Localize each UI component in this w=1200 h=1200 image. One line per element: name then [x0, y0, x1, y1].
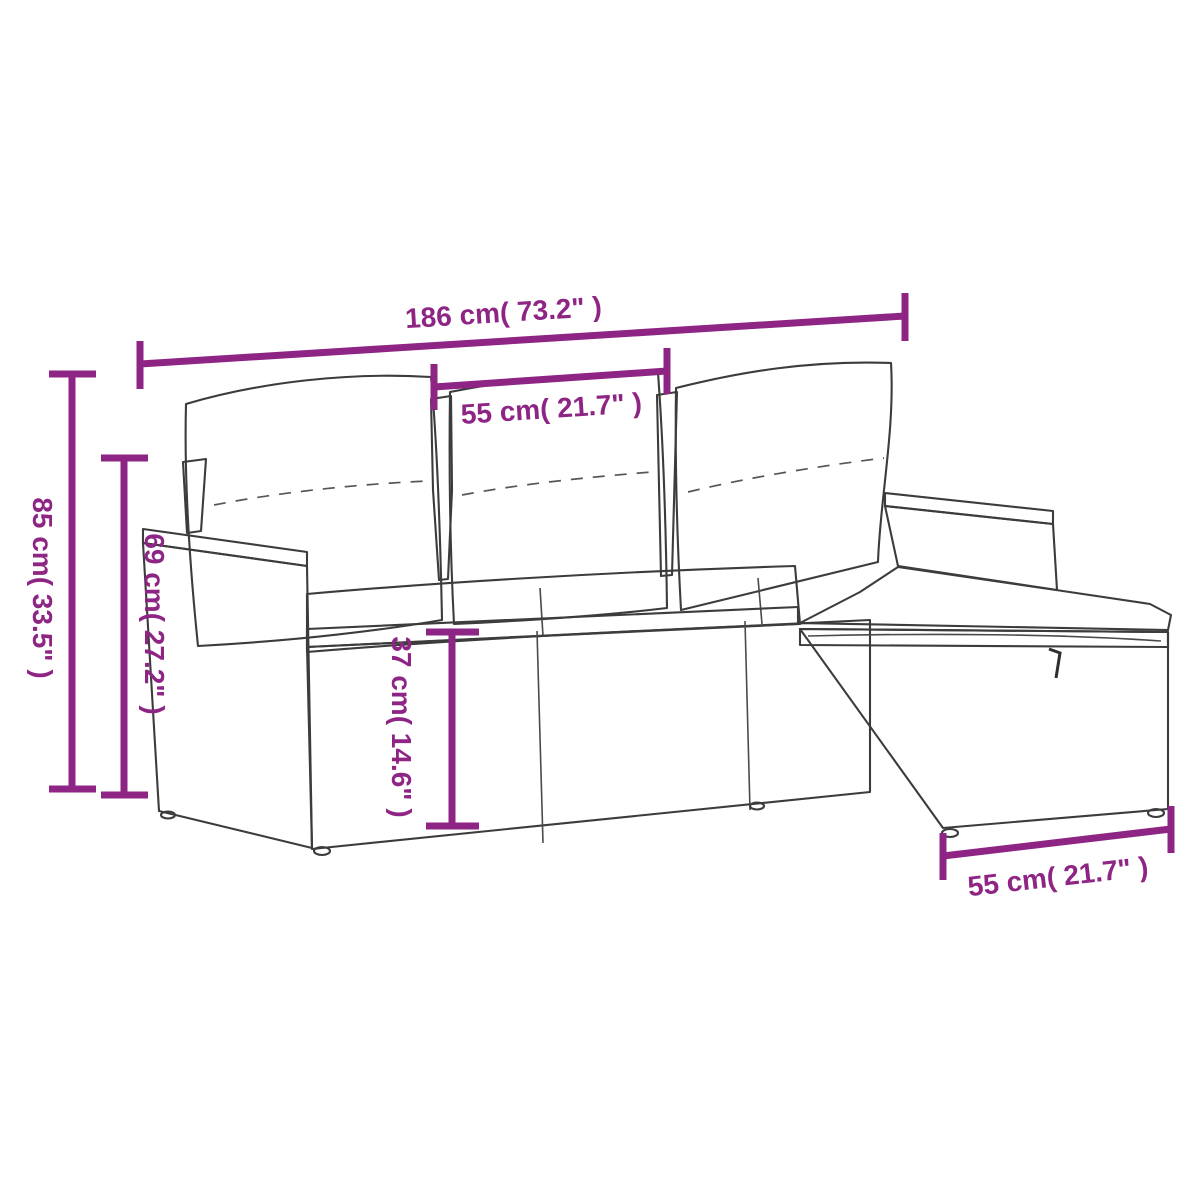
- sofa-base-seam-1: [537, 631, 543, 843]
- sofa-base-seam-2: [745, 621, 750, 810]
- back-cushion-right-crease: [688, 458, 884, 492]
- back-cushion-right: [676, 363, 892, 610]
- sofa-sketch: [143, 363, 1171, 855]
- dimension-label-armrest-height: 69 cm( 27.2" ): [139, 533, 170, 714]
- sofa-foot: [750, 803, 764, 810]
- footstool: [800, 629, 1168, 828]
- back-cushion-left-crease: [214, 481, 428, 505]
- dimension-label-overall-height: 85 cm( 33.5" ): [27, 497, 58, 678]
- seat-cushion-seam-left: [540, 588, 543, 636]
- back-cushion-left: [186, 376, 442, 646]
- dimension-footstool-width: 55 cm( 21.7" ): [943, 806, 1171, 902]
- dimension-label-footstool-width: 55 cm( 21.7" ): [966, 851, 1150, 902]
- dimension-armrest-height: 69 cm( 27.2" ): [101, 458, 170, 795]
- footstool-zipper-pull: [1049, 649, 1060, 678]
- dimension-line: [434, 371, 667, 387]
- product-dimension-page: 186 cm( 73.2" ) 55 cm( 21.7" ) 85 cm( 33…: [0, 0, 1200, 1200]
- footstool-cushion-roll: [808, 634, 1161, 641]
- dimension-label-seat-section-width: 55 cm( 21.7" ): [460, 387, 643, 430]
- seat-cushion-seam-right: [758, 578, 762, 624]
- dimension-overall-height: 85 cm( 33.5" ): [27, 374, 96, 789]
- back-cushion-middle-crease: [462, 472, 652, 495]
- dimension-overall-width: 186 cm( 73.2" ): [140, 291, 905, 389]
- furniture-dimension-diagram: 186 cm( 73.2" ) 55 cm( 21.7" ) 85 cm( 33…: [0, 0, 1200, 1200]
- dimension-label-seat-height: 37 cm( 14.6" ): [386, 636, 417, 817]
- seat-cushions: [307, 566, 800, 652]
- dimension-annotations: 186 cm( 73.2" ) 55 cm( 21.7" ) 85 cm( 33…: [27, 291, 1171, 902]
- dimension-label-overall-width: 186 cm( 73.2" ): [404, 291, 603, 334]
- dimension-seat-height: 37 cm( 14.6" ): [386, 632, 479, 826]
